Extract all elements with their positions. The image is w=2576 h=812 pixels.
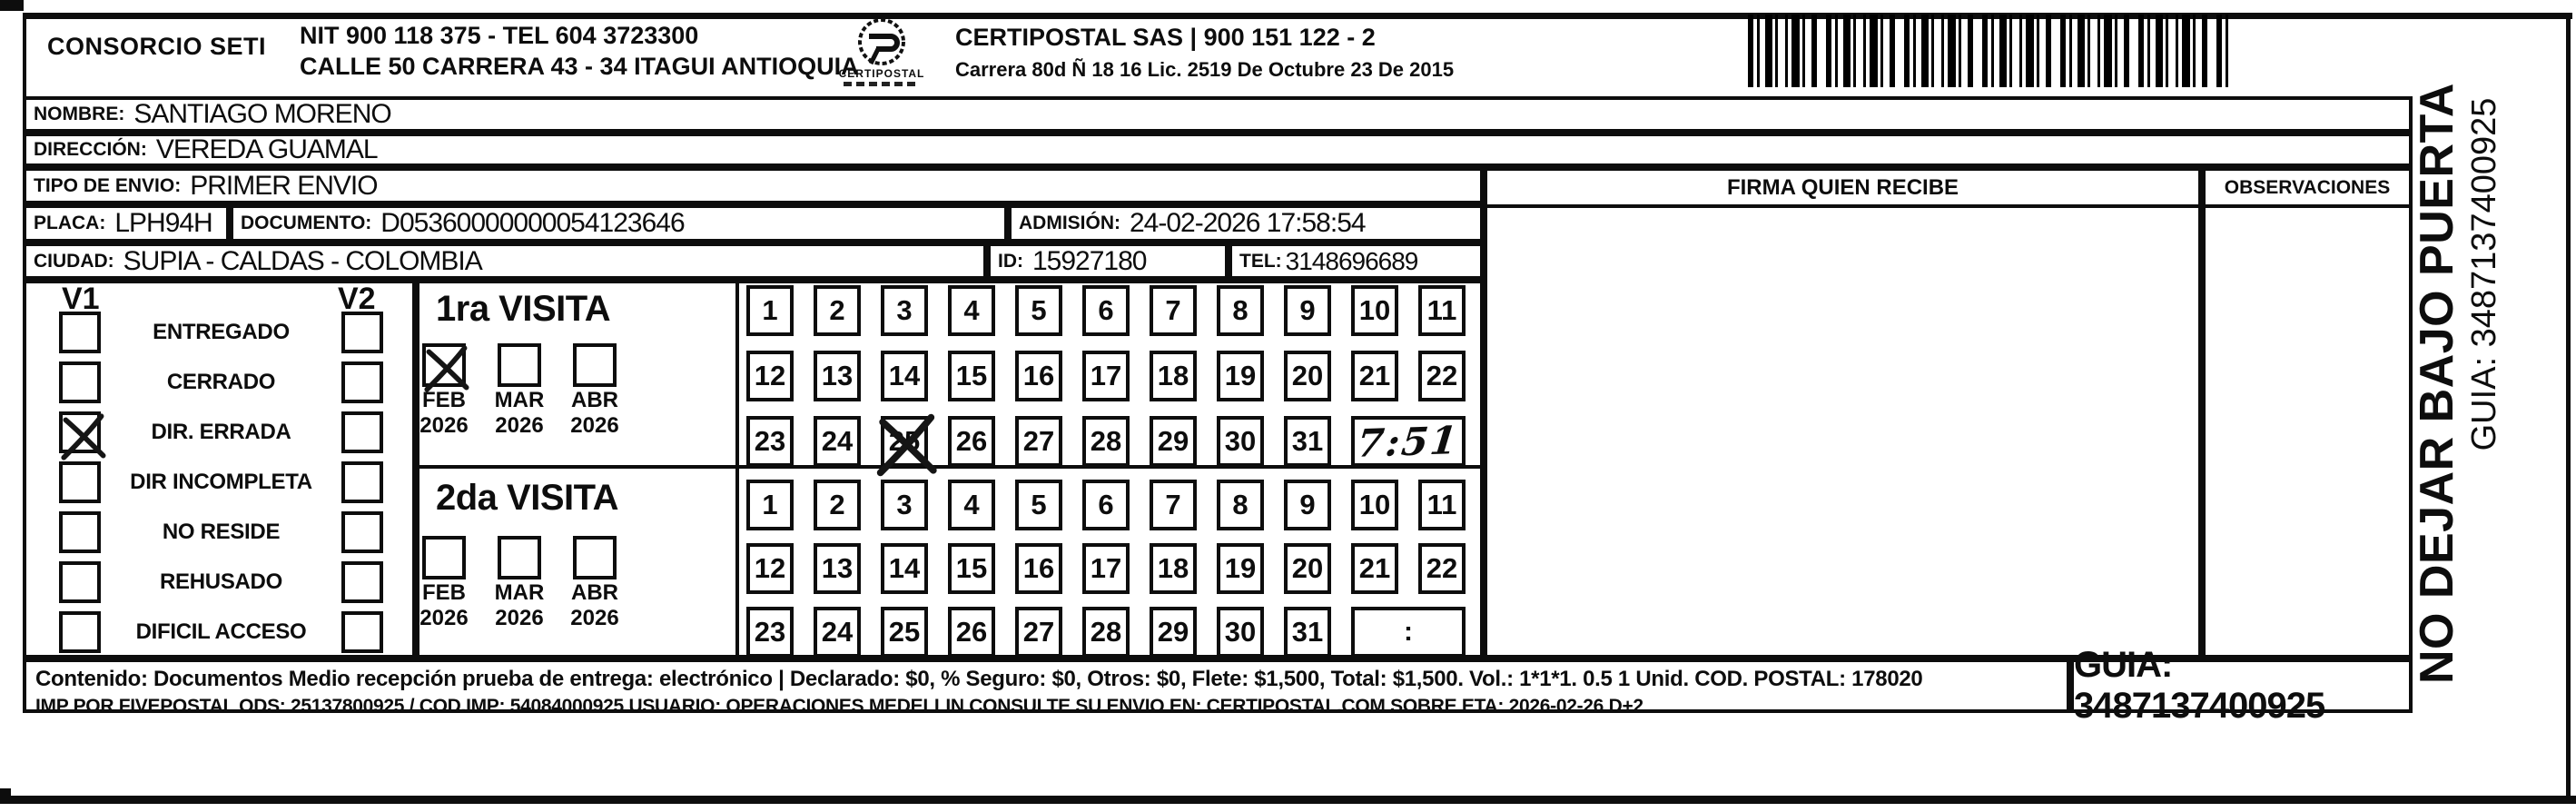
month-checkbox-mar xyxy=(498,343,541,387)
day-29-box: 29 xyxy=(1150,416,1197,467)
status-label: REHUSADO xyxy=(101,569,341,595)
guia-number: GUIA: 3487137400925 xyxy=(2074,645,2409,727)
day-6-box: 6 xyxy=(1082,285,1130,336)
month-col-feb: FEB 2026 xyxy=(410,343,478,438)
day-24-box: 24 xyxy=(814,607,861,658)
month-year-label: 2026 xyxy=(570,414,618,438)
day-23-box: 23 xyxy=(746,416,794,467)
day-13-box: 13 xyxy=(814,543,861,594)
firma-blank-area xyxy=(1487,208,2198,659)
status-label: ENTREGADO xyxy=(101,320,341,345)
scan-left-bottom-mark xyxy=(0,788,11,797)
day-8-box: 8 xyxy=(1217,285,1264,336)
v2-checkbox-cerrado xyxy=(341,361,383,403)
guia-box: GUIA: 3487137400925 xyxy=(2070,659,2413,713)
day-28-box: 28 xyxy=(1082,607,1130,658)
tipo-envio-row: TIPO DE ENVIO: PRIMER ENVIO xyxy=(23,167,1484,204)
company-address: CALLE 50 CARRERA 43 - 34 ITAGUI ANTIOQUI… xyxy=(300,53,859,81)
month-year-label: 2026 xyxy=(570,607,618,630)
company-name: CONSORCIO SETI xyxy=(47,33,266,61)
v2-checkbox-rehusado xyxy=(341,561,383,603)
direccion-row: DIRECCIÓN: VEREDA GUAMAL xyxy=(23,133,2413,167)
month-label: FEB xyxy=(422,581,466,605)
id-value: 15927180 xyxy=(1032,246,1146,277)
day-row: 2324252627282930317:51 xyxy=(746,416,1466,467)
status-row-rehusado: REHUSADO xyxy=(23,557,416,607)
observaciones-column: OBSERVACIONES xyxy=(2202,167,2413,659)
day-2-box: 2 xyxy=(814,285,861,336)
footer-info-box: Contenido: Documentos Medio recepción pr… xyxy=(23,659,2070,713)
tipo-envio-value: PRIMER ENVIO xyxy=(190,171,377,202)
v2-checkbox-dificil-acceso xyxy=(341,611,383,653)
day-20-box: 20 xyxy=(1284,543,1331,594)
logo-tagline-dashes xyxy=(844,82,920,86)
day-31-box: 31 xyxy=(1284,416,1331,467)
day-19-box: 19 xyxy=(1217,351,1264,401)
day-28-box: 28 xyxy=(1082,416,1130,467)
visit2-day-grid: 1234567891011121314151617181920212223242… xyxy=(746,480,1466,670)
v2-checkbox-dir-incompleta xyxy=(341,461,383,503)
tel-cell: TEL: 3148696689 xyxy=(1229,243,1484,280)
day-12-box: 12 xyxy=(746,351,794,401)
placa-label: PLACA: xyxy=(34,213,105,234)
day-14-box: 14 xyxy=(881,543,928,594)
partner-address: Carrera 80d Ñ 18 16 Lic. 2519 De Octubre… xyxy=(955,58,1454,82)
firma-header: FIRMA QUIEN RECIBE xyxy=(1487,171,2198,208)
day-18-box: 18 xyxy=(1150,543,1197,594)
direccion-value: VEREDA GUAMAL xyxy=(156,134,378,165)
v1-checkbox-no-reside xyxy=(59,511,101,553)
admision-cell: ADMISIÓN: 24-02-2026 17:58:54 xyxy=(1008,204,1484,243)
day-4-box: 4 xyxy=(948,480,995,530)
certipostal-logo-icon: CERTIPOSTAL xyxy=(831,16,933,94)
waybill-scan: CONSORCIO SETI NIT 900 118 375 - TEL 604… xyxy=(0,0,2576,812)
day-1-box: 1 xyxy=(746,480,794,530)
side-label: NO DEJAR BAJO PUERTA GUIA: 3487137400925 xyxy=(2411,65,2547,701)
v1-checkbox-cerrado xyxy=(59,361,101,403)
day-row: 232425262728293031: xyxy=(746,607,1466,658)
v2-checkbox-dir-errada xyxy=(341,411,383,453)
day-4-box: 4 xyxy=(948,285,995,336)
day-5-box: 5 xyxy=(1015,285,1062,336)
right-page-edge-line xyxy=(2566,13,2571,801)
status-label: DIR INCOMPLETA xyxy=(101,470,341,495)
day-3-box: 3 xyxy=(881,285,928,336)
handwritten-time: 7:51 xyxy=(1356,418,1462,466)
month-col-abr: ABR 2026 xyxy=(561,343,628,438)
day-9-box: 9 xyxy=(1284,285,1331,336)
no-dejar-bajo-puerta-label: NO DEJAR BAJO PUERTA xyxy=(2411,65,2463,701)
day-row: 1213141516171819202122 xyxy=(746,351,1466,401)
day-22-box: 22 xyxy=(1418,351,1466,401)
side-guia-number: GUIA: 3487137400925 xyxy=(2463,0,2505,592)
barcode-icon xyxy=(1748,15,2234,87)
day-10-box: 10 xyxy=(1351,285,1398,336)
status-row-no-reside: NO RESIDE xyxy=(23,507,416,557)
v1-checkbox-entregado xyxy=(59,312,101,353)
visit2-months: FEB 2026 MAR 2026 ABR 2026 xyxy=(410,536,628,630)
v1-checkbox-dir-errada xyxy=(59,411,101,453)
bottom-page-edge-line xyxy=(0,796,2576,804)
observaciones-blank-area xyxy=(2206,208,2409,659)
admision-label: ADMISIÓN: xyxy=(1019,213,1120,234)
status-label: DIFICIL ACCESO xyxy=(101,619,341,645)
day-7-box: 7 xyxy=(1150,285,1197,336)
visit-time-box: 7:51 xyxy=(1351,416,1466,467)
footer-line1: Contenido: Documentos Medio recepción pr… xyxy=(35,667,2058,692)
month-label: FEB xyxy=(422,389,466,412)
day-22-box: 22 xyxy=(1418,543,1466,594)
status-row-dir-errada: DIR. ERRADA xyxy=(23,407,416,457)
visit1-day-grid: 1234567891011121314151617181920212223242… xyxy=(746,285,1466,481)
day-21-box: 21 xyxy=(1351,351,1398,401)
day-19-box: 19 xyxy=(1217,543,1264,594)
v2-checkbox-entregado xyxy=(341,312,383,353)
month-label: ABR xyxy=(571,581,618,605)
day-25-box: 25 xyxy=(881,607,928,658)
v1-checkbox-dir-incompleta xyxy=(59,461,101,503)
day-16-box: 16 xyxy=(1015,351,1062,401)
status-rows: ENTREGADOCERRADODIR. ERRADADIR INCOMPLET… xyxy=(23,307,416,657)
month-col-abr: ABR 2026 xyxy=(561,536,628,630)
day-27-box: 27 xyxy=(1015,416,1062,467)
visit-time-box: : xyxy=(1351,607,1466,658)
observaciones-header-label: OBSERVACIONES xyxy=(2225,177,2390,199)
month-checkbox-abr xyxy=(573,343,617,387)
logo-caption: CERTIPOSTAL xyxy=(831,67,933,80)
time-colon: : xyxy=(1404,617,1413,648)
month-col-mar: MAR 2026 xyxy=(486,343,553,438)
day-11-box: 11 xyxy=(1418,480,1466,530)
documento-cell: DOCUMENTO: D05360000000054123646 xyxy=(230,204,1008,243)
v1-checkbox-dificil-acceso xyxy=(59,611,101,653)
day-9-box: 9 xyxy=(1284,480,1331,530)
day-13-box: 13 xyxy=(814,351,861,401)
scan-corner-mark xyxy=(0,0,24,11)
observaciones-header: OBSERVACIONES xyxy=(2206,171,2409,208)
day-16-box: 16 xyxy=(1015,543,1062,594)
day-17-box: 17 xyxy=(1082,351,1130,401)
nombre-value: SANTIAGO MORENO xyxy=(133,99,390,130)
status-row-entregado: ENTREGADO xyxy=(23,307,416,357)
v2-checkbox-no-reside xyxy=(341,511,383,553)
day-12-box: 12 xyxy=(746,543,794,594)
month-year-label: 2026 xyxy=(495,414,543,438)
documento-label: DOCUMENTO: xyxy=(241,213,371,234)
status-row-dificil-acceso: DIFICIL ACCESO xyxy=(23,607,416,657)
day-10-box: 10 xyxy=(1351,480,1398,530)
day-27-box: 27 xyxy=(1015,607,1062,658)
month-label: MAR xyxy=(495,389,545,412)
firma-header-label: FIRMA QUIEN RECIBE xyxy=(1727,175,1959,201)
tipo-envio-label: TIPO DE ENVIO: xyxy=(34,175,181,197)
day-row: 1234567891011 xyxy=(746,480,1466,530)
day-row: 1234567891011 xyxy=(746,285,1466,336)
month-label: ABR xyxy=(571,389,618,412)
month-year-label: 2026 xyxy=(419,414,468,438)
day-6-box: 6 xyxy=(1082,480,1130,530)
day-26-box: 26 xyxy=(948,416,995,467)
day-25-box: 25 xyxy=(881,416,928,467)
day-11-box: 11 xyxy=(1418,285,1466,336)
ciudad-label: CIUDAD: xyxy=(34,251,114,272)
day-26-box: 26 xyxy=(948,607,995,658)
status-label: DIR. ERRADA xyxy=(101,420,341,445)
day-20-box: 20 xyxy=(1284,351,1331,401)
header-left-border xyxy=(23,13,26,98)
day-7-box: 7 xyxy=(1150,480,1197,530)
day-17-box: 17 xyxy=(1082,543,1130,594)
visits-vertical-divider xyxy=(735,280,739,659)
company-nit-tel: NIT 900 118 375 - TEL 604 3723300 xyxy=(300,22,698,50)
status-label: NO RESIDE xyxy=(101,520,341,545)
day-15-box: 15 xyxy=(948,543,995,594)
visit1-months: FEB 2026 MAR 2026 ABR 2026 xyxy=(410,343,628,438)
ciudad-value: SUPIA - CALDAS - COLOMBIA xyxy=(123,246,482,277)
placa-value: LPH94H xyxy=(114,208,212,239)
tel-label: TEL: xyxy=(1239,251,1282,272)
documento-value: D05360000000054123646 xyxy=(380,208,684,239)
day-14-box: 14 xyxy=(881,351,928,401)
day-8-box: 8 xyxy=(1217,480,1264,530)
day-29-box: 29 xyxy=(1150,607,1197,658)
month-col-mar: MAR 2026 xyxy=(486,536,553,630)
day-21-box: 21 xyxy=(1351,543,1398,594)
x-mark-icon xyxy=(873,411,943,480)
day-15-box: 15 xyxy=(948,351,995,401)
admision-value: 24-02-2026 17:58:54 xyxy=(1130,208,1366,239)
month-checkbox-mar xyxy=(498,536,541,579)
day-2-box: 2 xyxy=(814,480,861,530)
day-30-box: 30 xyxy=(1217,416,1264,467)
status-row-dir-incompleta: DIR INCOMPLETA xyxy=(23,457,416,507)
month-label: MAR xyxy=(495,581,545,605)
tel-value: 3148696689 xyxy=(1286,247,1418,276)
day-5-box: 5 xyxy=(1015,480,1062,530)
status-row-cerrado: CERRADO xyxy=(23,357,416,407)
footer-line2: IMP POR FIVEPOSTAL ODS: 25137800925 / CO… xyxy=(35,696,2058,718)
visit2-title: 2da VISITA xyxy=(436,478,618,519)
month-checkbox-abr xyxy=(573,536,617,579)
v1-checkbox-rehusado xyxy=(59,561,101,603)
id-cell: ID: 15927180 xyxy=(987,243,1229,280)
day-31-box: 31 xyxy=(1284,607,1331,658)
firma-column: FIRMA QUIEN RECIBE xyxy=(1484,167,2202,659)
day-23-box: 23 xyxy=(746,607,794,658)
day-18-box: 18 xyxy=(1150,351,1197,401)
day-3-box: 3 xyxy=(881,480,928,530)
month-year-label: 2026 xyxy=(419,607,468,630)
nombre-row: NOMBRE: SANTIAGO MORENO xyxy=(23,96,2413,133)
ciudad-cell: CIUDAD: SUPIA - CALDAS - COLOMBIA xyxy=(23,243,987,280)
month-col-feb: FEB 2026 xyxy=(410,536,478,630)
day-24-box: 24 xyxy=(814,416,861,467)
placa-cell: PLACA: LPH94H xyxy=(23,204,230,243)
status-label: CERRADO xyxy=(101,370,341,395)
day-30-box: 30 xyxy=(1217,607,1264,658)
partner-name: CERTIPOSTAL SAS | 900 151 122 - 2 xyxy=(955,24,1376,52)
nombre-label: NOMBRE: xyxy=(34,104,124,125)
month-checkbox-feb xyxy=(422,536,466,579)
day-row: 1213141516171819202122 xyxy=(746,543,1466,594)
id-label: ID: xyxy=(998,251,1023,272)
direccion-label: DIRECCIÓN: xyxy=(34,139,147,161)
month-checkbox-feb xyxy=(422,343,466,387)
visit1-title: 1ra VISITA xyxy=(436,289,610,330)
month-year-label: 2026 xyxy=(495,607,543,630)
day-1-box: 1 xyxy=(746,285,794,336)
